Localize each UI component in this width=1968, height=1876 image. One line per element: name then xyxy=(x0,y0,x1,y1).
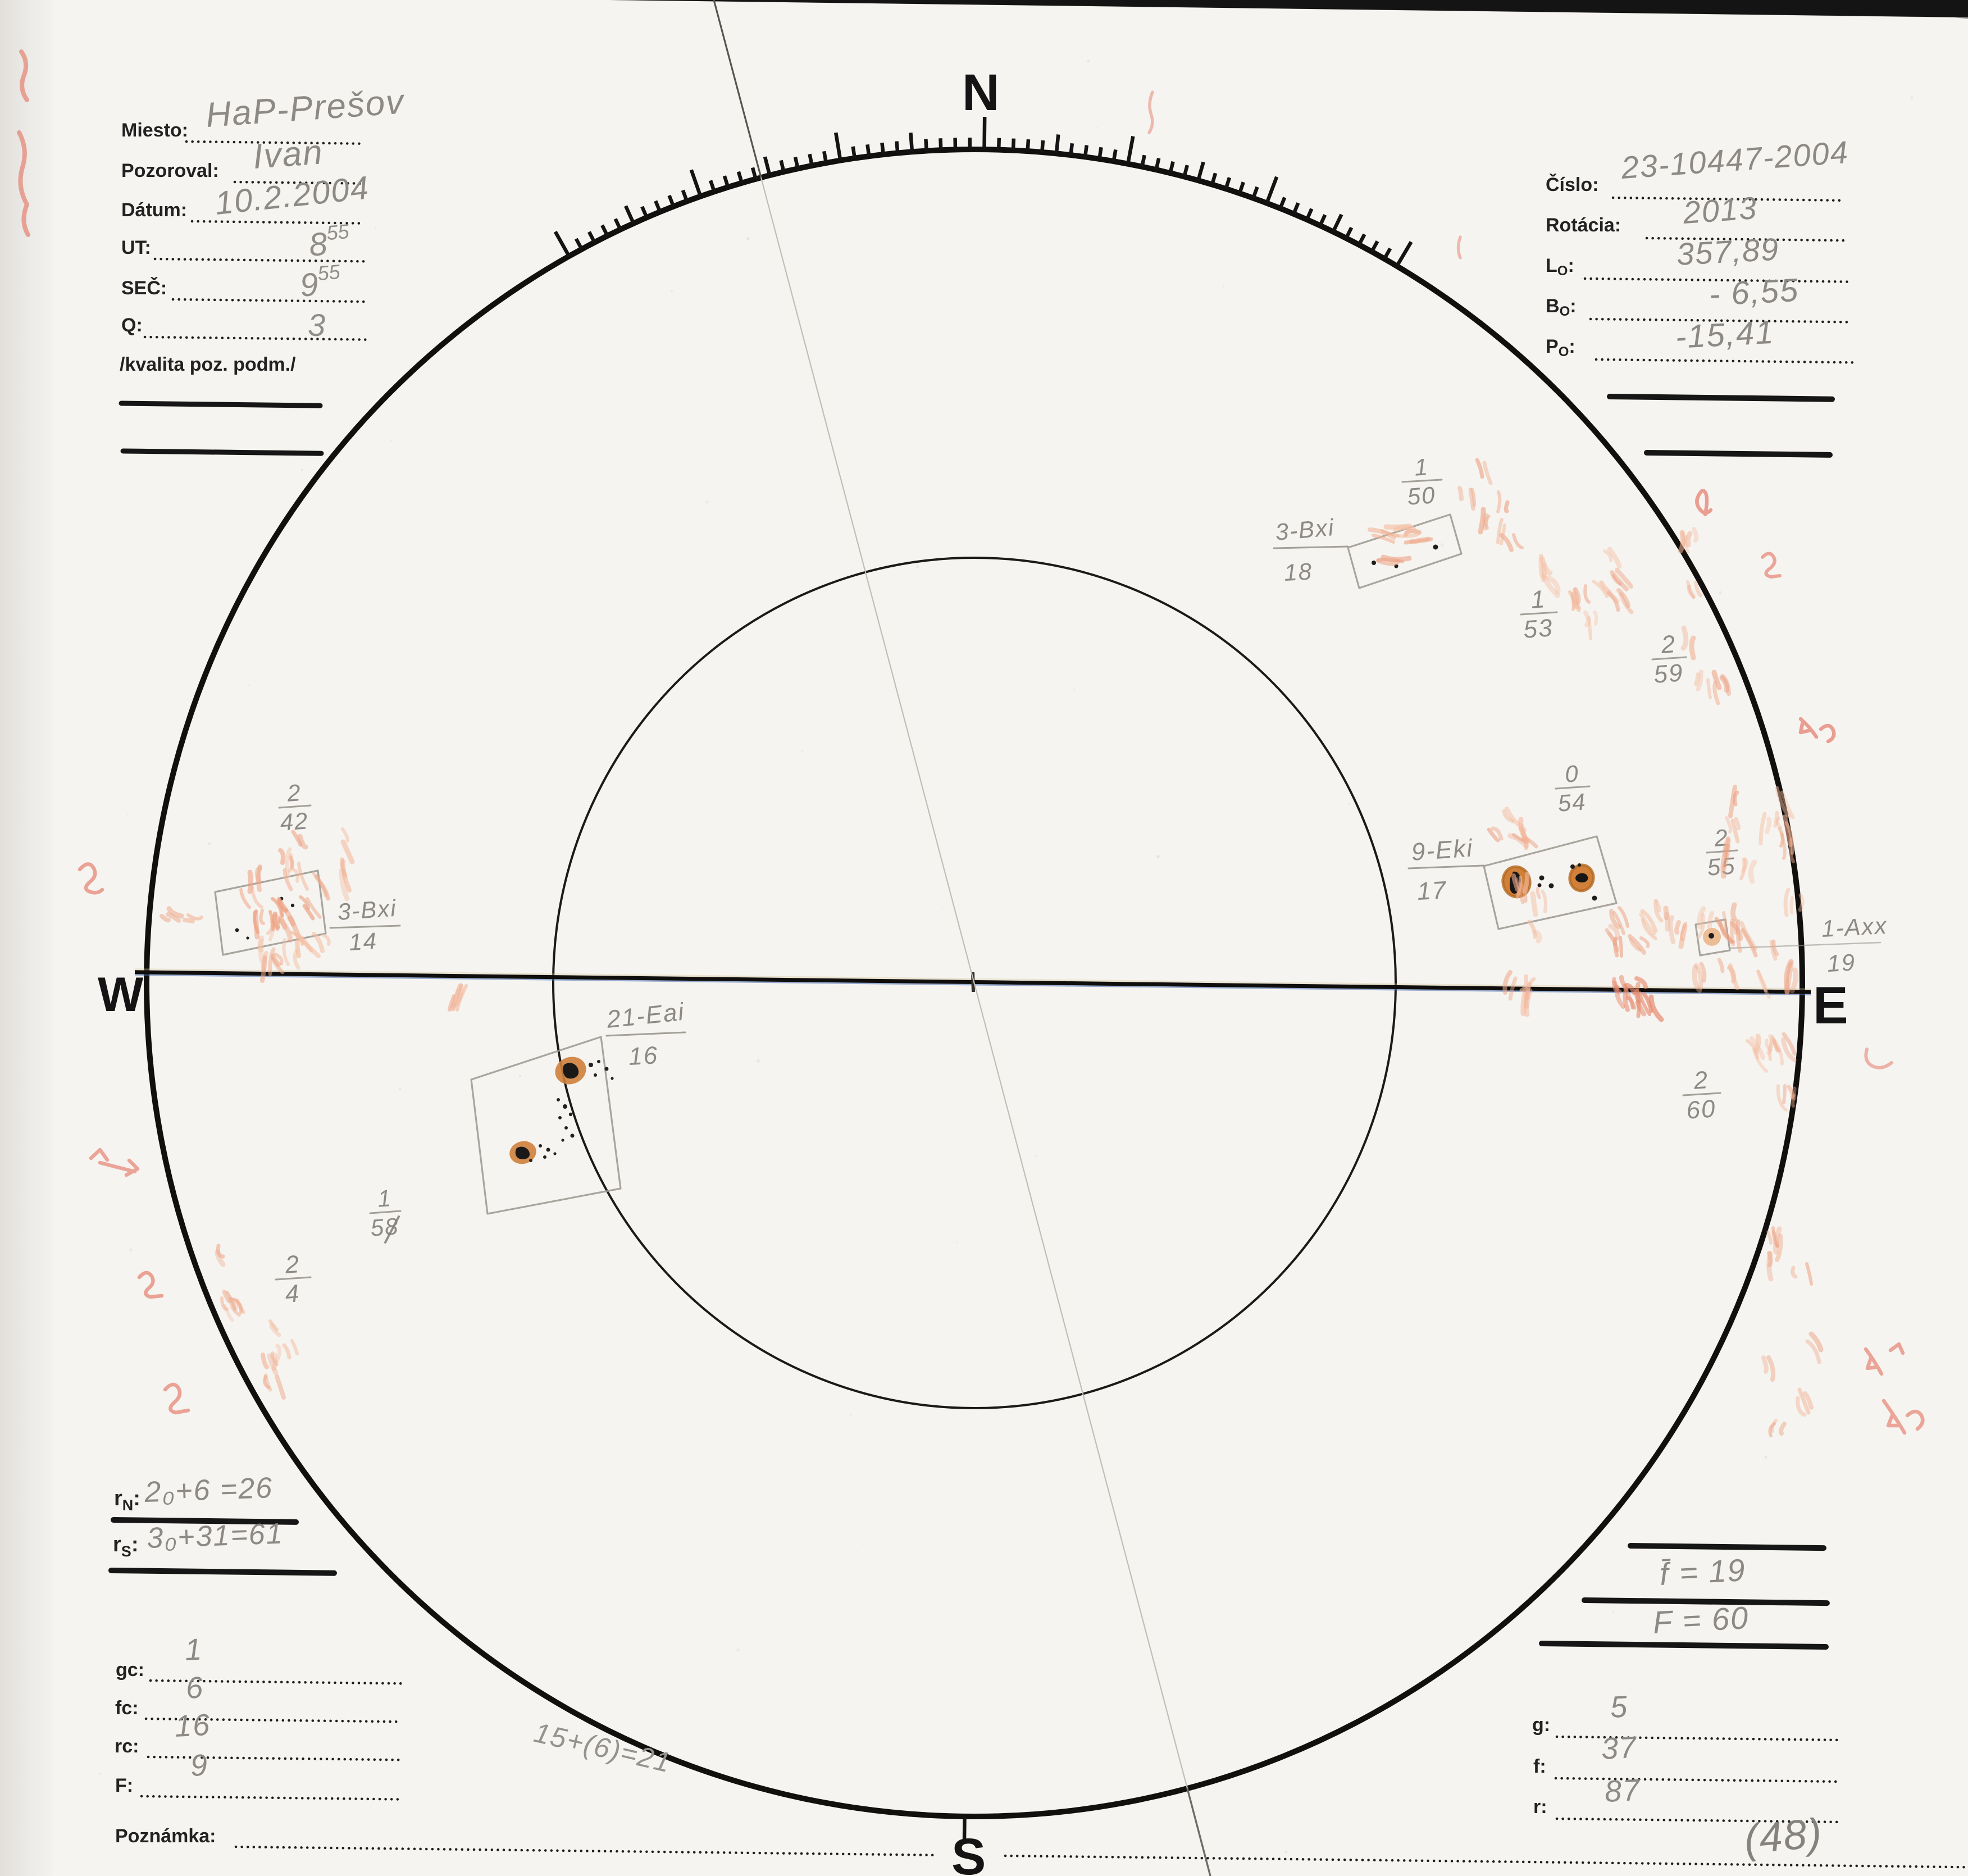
svg-text:Pozoroval:: Pozoroval: xyxy=(121,160,219,181)
svg-text:50: 50 xyxy=(1406,481,1437,509)
svg-text:g:: g: xyxy=(1532,1714,1550,1736)
svg-text:1: 1 xyxy=(1414,453,1430,481)
svg-text:60: 60 xyxy=(1685,1095,1717,1124)
svg-text:6: 6 xyxy=(185,1670,204,1705)
svg-text:2₀+6 =26: 2₀+6 =26 xyxy=(143,1472,274,1509)
svg-text:- 6,55: - 6,55 xyxy=(1708,272,1800,313)
svg-text:59: 59 xyxy=(1653,659,1684,689)
svg-text:r:: r: xyxy=(1533,1796,1547,1818)
svg-text:9: 9 xyxy=(298,266,320,304)
svg-text:37: 37 xyxy=(1600,1731,1638,1766)
svg-text:87: 87 xyxy=(1603,1773,1641,1809)
svg-text:1-Axx: 1-Axx xyxy=(1821,912,1888,942)
svg-text:9: 9 xyxy=(189,1748,209,1783)
svg-text:16: 16 xyxy=(628,1041,659,1071)
svg-text:f̄ = 19: f̄ = 19 xyxy=(1659,1552,1747,1592)
svg-text:2013: 2013 xyxy=(1681,190,1759,230)
svg-text:2: 2 xyxy=(284,1250,301,1279)
svg-text:5: 5 xyxy=(1609,1690,1629,1724)
svg-text:8: 8 xyxy=(307,225,329,263)
svg-text:3: 3 xyxy=(308,307,325,343)
svg-text:357,89: 357,89 xyxy=(1675,231,1780,272)
svg-text:S: S xyxy=(951,1828,986,1876)
svg-text:16: 16 xyxy=(174,1708,211,1743)
svg-text:F = 60: F = 60 xyxy=(1652,1600,1750,1640)
svg-text:N: N xyxy=(962,64,999,121)
svg-text:2: 2 xyxy=(1660,630,1677,659)
svg-text:Dátum:: Dátum: xyxy=(121,199,187,221)
svg-text:rc:: rc: xyxy=(115,1736,139,1757)
svg-text:3-Bxi: 3-Bxi xyxy=(1274,514,1336,545)
svg-text:58: 58 xyxy=(370,1213,400,1241)
svg-text:3₀+31=61: 3₀+31=61 xyxy=(146,1518,284,1555)
svg-text:53: 53 xyxy=(1523,614,1554,644)
svg-text:2: 2 xyxy=(286,779,303,807)
svg-text:(48): (48) xyxy=(1742,1809,1824,1863)
svg-text:Ivan: Ivan xyxy=(252,133,325,176)
svg-text:Q:: Q: xyxy=(121,315,143,336)
svg-text:17: 17 xyxy=(1416,876,1447,905)
svg-text:55: 55 xyxy=(317,260,341,285)
svg-text:Rotácia:: Rotácia: xyxy=(1546,215,1621,236)
svg-text:SEČ:: SEČ: xyxy=(121,277,167,299)
svg-text:2: 2 xyxy=(1692,1066,1710,1095)
svg-text:Miesto:: Miesto: xyxy=(121,120,188,141)
svg-text:f:: f: xyxy=(1533,1756,1546,1777)
svg-text:54: 54 xyxy=(1557,788,1587,816)
svg-text:UT:: UT: xyxy=(121,237,151,258)
svg-text:fc:: fc: xyxy=(115,1697,139,1719)
svg-text:gc:: gc: xyxy=(116,1659,144,1681)
svg-text:0: 0 xyxy=(1564,760,1580,787)
svg-text:1: 1 xyxy=(377,1185,393,1212)
svg-text:F:: F: xyxy=(115,1775,133,1796)
svg-text:19: 19 xyxy=(1826,949,1856,977)
svg-text:1: 1 xyxy=(184,1632,203,1667)
svg-text:4: 4 xyxy=(284,1279,301,1308)
svg-text:1: 1 xyxy=(1530,585,1547,614)
svg-text:Poznámka:: Poznámka: xyxy=(115,1825,216,1847)
svg-text:E: E xyxy=(1813,976,1848,1035)
svg-text:W: W xyxy=(98,968,144,1022)
svg-text:/kvalita poz. podm./: /kvalita poz. podm./ xyxy=(120,354,296,375)
svg-text:18: 18 xyxy=(1283,558,1313,586)
svg-text:-15,41: -15,41 xyxy=(1674,314,1775,356)
svg-text:14: 14 xyxy=(348,927,378,955)
svg-text:55: 55 xyxy=(326,220,350,244)
svg-text:Číslo:: Číslo: xyxy=(1546,174,1598,195)
svg-text:9-Eki: 9-Eki xyxy=(1410,834,1474,866)
